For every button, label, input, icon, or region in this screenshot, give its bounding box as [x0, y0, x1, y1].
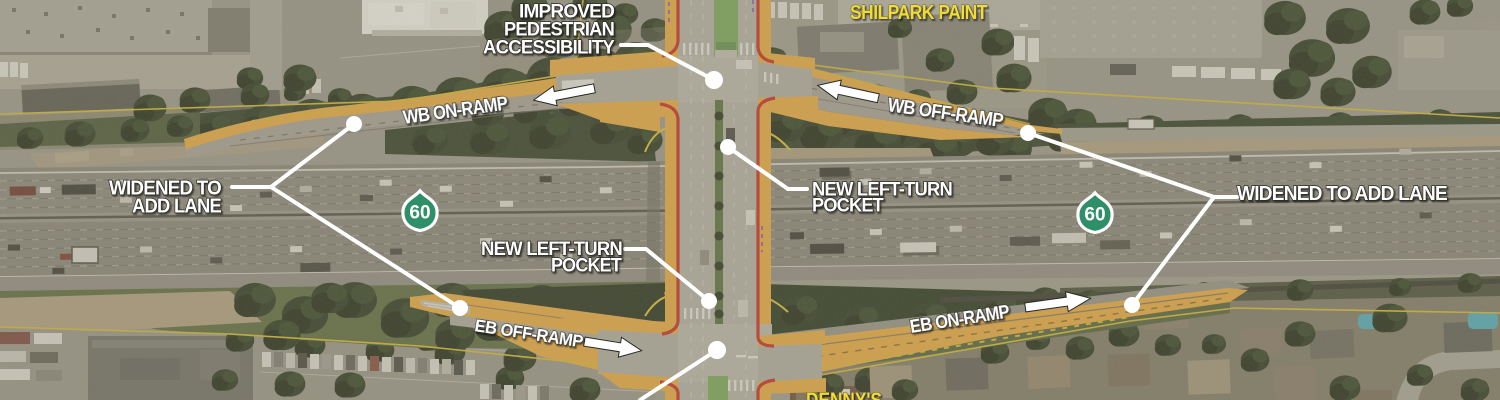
svg-text:DENNY'S: DENNY'S — [806, 389, 882, 400]
svg-text:SHILPARK PAINT: SHILPARK PAINT — [850, 2, 987, 24]
svg-text:POCKET: POCKET — [812, 196, 884, 217]
svg-text:WIDENED TO ADD LANE: WIDENED TO ADD LANE — [1237, 183, 1447, 205]
svg-text:POCKET: POCKET — [551, 256, 622, 277]
svg-text:ACCESSIBILITY: ACCESSIBILITY — [483, 38, 615, 59]
svg-text:ADD LANE: ADD LANE — [132, 196, 221, 218]
svg-text:60: 60 — [409, 202, 430, 223]
svg-text:60: 60 — [1084, 204, 1105, 225]
